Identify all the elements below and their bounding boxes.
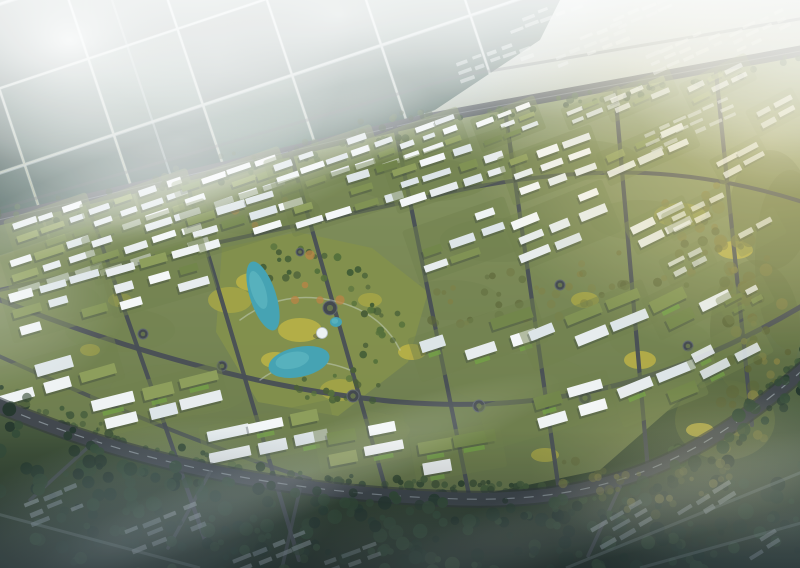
global-tint xyxy=(0,0,800,568)
aerial-city-render xyxy=(0,0,800,568)
city-masterplan-svg xyxy=(0,0,800,568)
